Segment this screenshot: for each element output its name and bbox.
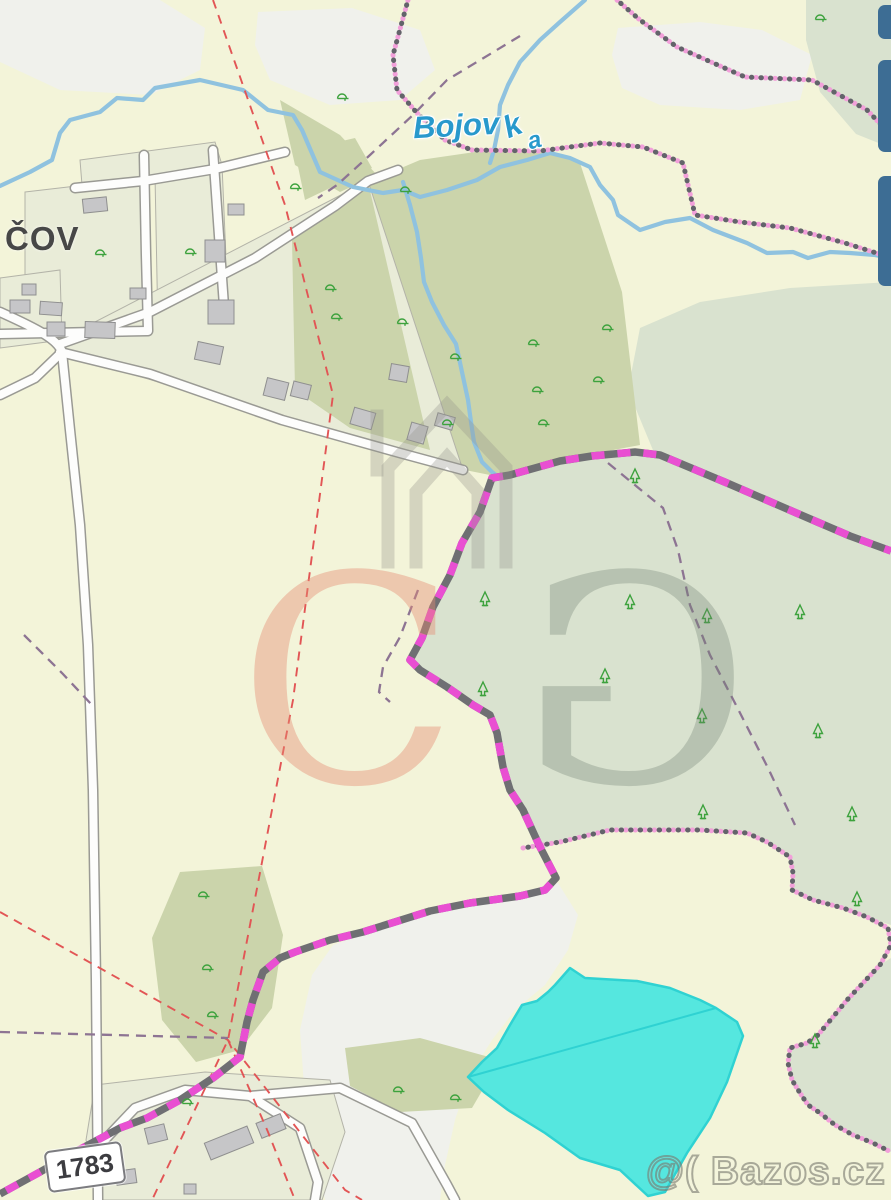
logo-letter-g-watermark: G [520, 568, 750, 798]
stream-label-part1: Bojov [412, 106, 500, 146]
forest-southeast [788, 958, 891, 1152]
stream-name-label: Bojovka [413, 108, 542, 144]
map-control-button[interactable] [878, 60, 891, 152]
field-white-topcenter [255, 8, 435, 105]
map-control-button[interactable] [878, 176, 891, 286]
bazos-watermark: @( Bazos.cz [646, 1150, 886, 1194]
field-white-topright [612, 22, 812, 110]
orchard-southwest [152, 866, 283, 1062]
logo-letter-c-watermark: C [238, 568, 458, 798]
field-white-topleft [0, 0, 205, 95]
village-name-label: ČOV [5, 220, 80, 258]
stream-label-part2: k [498, 106, 527, 146]
map-screenshot: C G ČOV Bojovka 1783 @( Bazos.cz [0, 0, 891, 1200]
map-control-button[interactable] [878, 5, 891, 39]
